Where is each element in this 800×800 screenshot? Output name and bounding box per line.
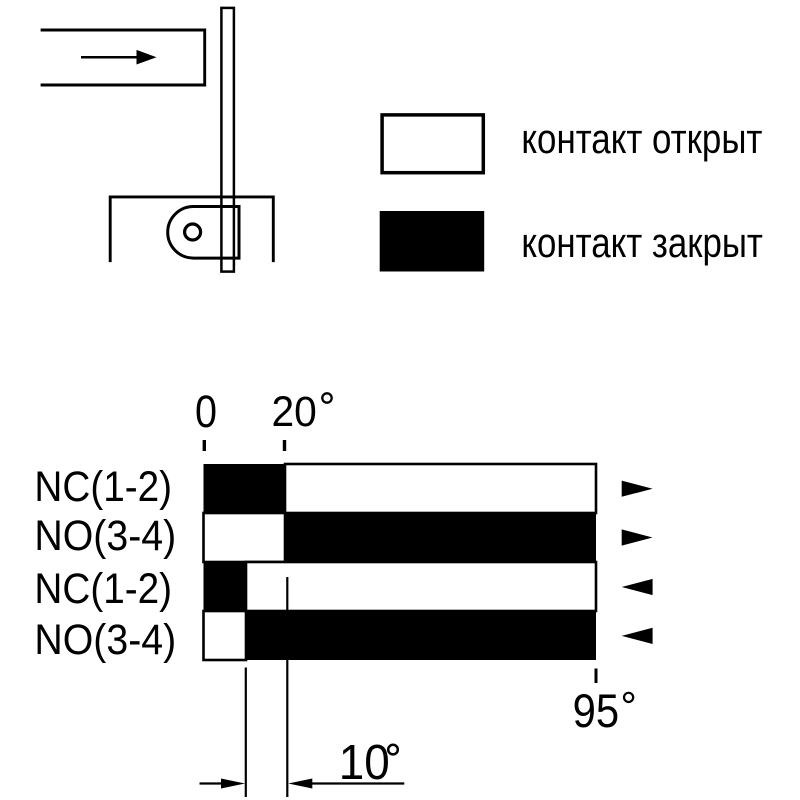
svg-text:NO(3-4): NO(3-4)	[34, 616, 176, 664]
svg-text:NC(1-2): NC(1-2)	[34, 565, 172, 613]
svg-text:20: 20	[272, 388, 317, 436]
svg-text:NO(3-4): NO(3-4)	[34, 512, 176, 560]
svg-text:контакт закрыт: контакт закрыт	[521, 219, 763, 266]
svg-text:NC(1-2): NC(1-2)	[34, 463, 172, 511]
svg-text:контакт открыт: контакт открыт	[521, 115, 762, 162]
svg-text:95: 95	[573, 684, 620, 737]
svg-text:0: 0	[195, 386, 217, 437]
svg-text:10: 10	[339, 736, 390, 790]
